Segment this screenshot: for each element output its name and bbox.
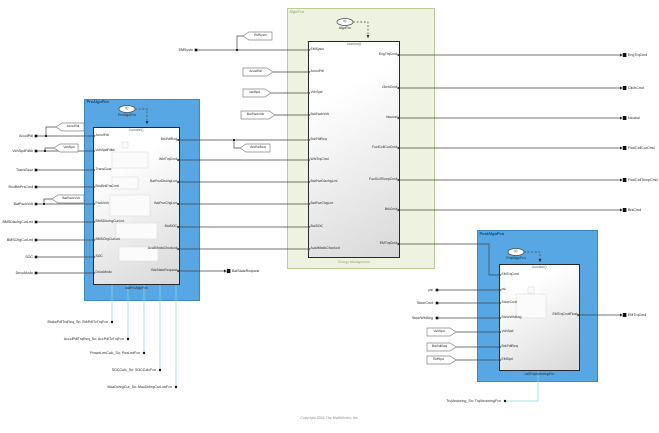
input-label: BatPackVolt	[14, 202, 33, 206]
tag-label: EMSysIn	[249, 34, 272, 38]
pre-algo-fcn-caption: PreAlgoFcn	[112, 114, 142, 118]
port-label: Neutral	[386, 116, 397, 120]
port-label: BatPwrChgLmt	[154, 202, 177, 206]
output-label: CltchCmd	[628, 86, 644, 90]
port-label: BrkPdlReq	[161, 138, 177, 142]
port-label: SOC	[96, 255, 103, 259]
pre-algo-footer: callPreAlgoFcn	[93, 287, 180, 291]
algo-header: function()	[308, 43, 400, 47]
port-label: PackVolt	[96, 202, 109, 206]
output-label: EngTrqCmd	[628, 53, 647, 57]
port-label: VehSpdFdbk	[96, 149, 115, 153]
port-label: EngTrqCmd	[379, 53, 397, 57]
pre-algo-fcn-icon-text: f()	[119, 107, 135, 111]
algo-footer: Energy Management	[308, 261, 400, 265]
sn-function-wires	[111, 285, 538, 402]
port-label: FuelCellCurCmd	[372, 146, 397, 150]
post-algo-label: PostAlgoFcn	[480, 232, 505, 237]
post-algo-fcn-icon-text: f()	[508, 250, 524, 254]
port-label: BrkPdlReq	[502, 345, 518, 349]
tag-label: BatPackVolt	[58, 197, 84, 201]
port-label: AvailModeChecked	[311, 247, 340, 251]
sn-annotation: BrakePdlTrqReq_Sn: BrkPdlToTrqFcn	[48, 320, 108, 324]
tag-label: AccelPdl	[62, 125, 84, 129]
input-label: BcuBrkPrsCmd	[8, 185, 33, 189]
port-label: EMTrqCmd	[380, 242, 397, 246]
output-label: FuelCellCurCmd	[628, 146, 655, 150]
algo-fcn-caption: AlgoFcn	[330, 27, 360, 31]
port-label: BcuBrkPrsCmd	[96, 185, 119, 189]
port-label: BatSOC	[311, 225, 323, 229]
output-label: BrkCmd	[628, 208, 641, 212]
pre-algo-header: function()	[93, 129, 180, 133]
input-label: TransGear	[16, 168, 33, 172]
sn-annotation: AccelPdlTrqReq_Sn: AccPdlToTrqFcn	[64, 337, 124, 341]
port-label: BrkPdlReq	[311, 138, 327, 142]
tag-label: EMSpd	[428, 358, 449, 362]
pre-algo-label: PreAlgoFcn	[87, 100, 109, 105]
port-label: BatPwrChgLmt	[311, 202, 334, 206]
input-label: BMSDischgCurLmt	[2, 220, 33, 224]
input-label: AccelPdl	[19, 134, 33, 138]
tag-label: BrkPdlReq	[246, 146, 270, 150]
port-label: AvailModeChecked	[148, 247, 177, 251]
post-algo-header: function()	[499, 266, 580, 270]
port-label: EMSysIn	[311, 48, 325, 52]
simulink-canvas: PreAlgoFcn AlgoFcn PostAlgoFcn f() PreAl…	[0, 0, 659, 433]
sn-annotation: TrqVectoring_Sn: TrqVectoringFcn	[446, 399, 501, 403]
port-label: BatSOC	[165, 225, 177, 229]
port-label: VehSpd	[311, 91, 323, 95]
port-label: EMSpd	[502, 358, 513, 362]
input-label: BMSChgCurLmt	[7, 238, 33, 242]
post-algo-footer: callTrqVectoringFcn	[499, 373, 580, 377]
input-label: SteerCmd	[417, 301, 433, 305]
port-label: TransGear	[96, 168, 112, 172]
port-label: WhlTrqCmd	[159, 158, 177, 162]
output-label: FuelCellTempCmd	[628, 178, 658, 182]
port-label: VehSpd	[502, 330, 514, 334]
output-label: BatStateRequest	[232, 269, 259, 273]
input-label: DriveMode	[16, 271, 33, 275]
algo-label: AlgoFcn	[290, 10, 305, 15]
port-label: BatStateRequest	[151, 269, 177, 273]
tag-label: AccelPdl	[244, 70, 267, 74]
output-label: EMTrqCmd	[628, 313, 646, 317]
input-label: EMSysIn	[179, 48, 193, 52]
port-label: BatPwrDischgLmt	[150, 180, 177, 184]
sn-annotation: SOCCalc_Sn: SOCCalcFcn	[112, 368, 156, 372]
sn-annotation: PowerLmtCalc_Sn: PwrLmtFcn	[90, 351, 140, 355]
port-label: EMTrqCmd	[502, 273, 519, 277]
input-label: SteerWhlAng	[412, 316, 433, 320]
port-label: WhlTrqCmd	[311, 158, 329, 162]
port-label: EMTrqCmdFinal	[552, 313, 577, 317]
port-label: BrkCmd	[385, 208, 397, 212]
port-label: DriveMode	[96, 271, 112, 275]
port-label: BMSChgCurLmt	[96, 238, 121, 242]
sn-annotation: MaxDchrgCur_Sn: MaxDchrgCurLimFcn	[107, 385, 172, 389]
port-label: SteerWhlAng	[502, 316, 522, 320]
port-label: BMSDischgCurLmt	[96, 220, 125, 224]
input-label: VehSpdFdbk	[12, 149, 33, 153]
port-label: AccelPdl	[311, 70, 324, 74]
tag-label: BrkPdlReq	[428, 345, 451, 349]
port-label: BatPwrDischgLmt	[311, 180, 338, 184]
tag-label: VehSpd	[244, 91, 265, 95]
input-label: SOC	[25, 255, 33, 259]
port-label: AccelPdl	[96, 134, 109, 138]
port-label: BatPackVolt	[311, 113, 329, 117]
port-label: CltchCmd	[382, 86, 397, 90]
port-label: SteerCmd	[502, 301, 517, 305]
post-algo-fcn-caption: PostAlgoFcn	[501, 257, 531, 261]
port-label: FuelCellTempCmd	[369, 178, 397, 182]
input-label: psi	[428, 288, 433, 292]
tag-label: BatPackVolt	[242, 113, 269, 117]
tag-label: VehSpd	[60, 146, 78, 150]
port-label: psi	[502, 288, 506, 292]
output-label: Neutral	[628, 116, 640, 120]
algo-fcn-icon-text: f()	[337, 20, 353, 24]
copyright-note: Copyright 2024 The MathWorks, Inc.	[0, 416, 659, 420]
tag-label: VehSpd	[428, 330, 450, 334]
